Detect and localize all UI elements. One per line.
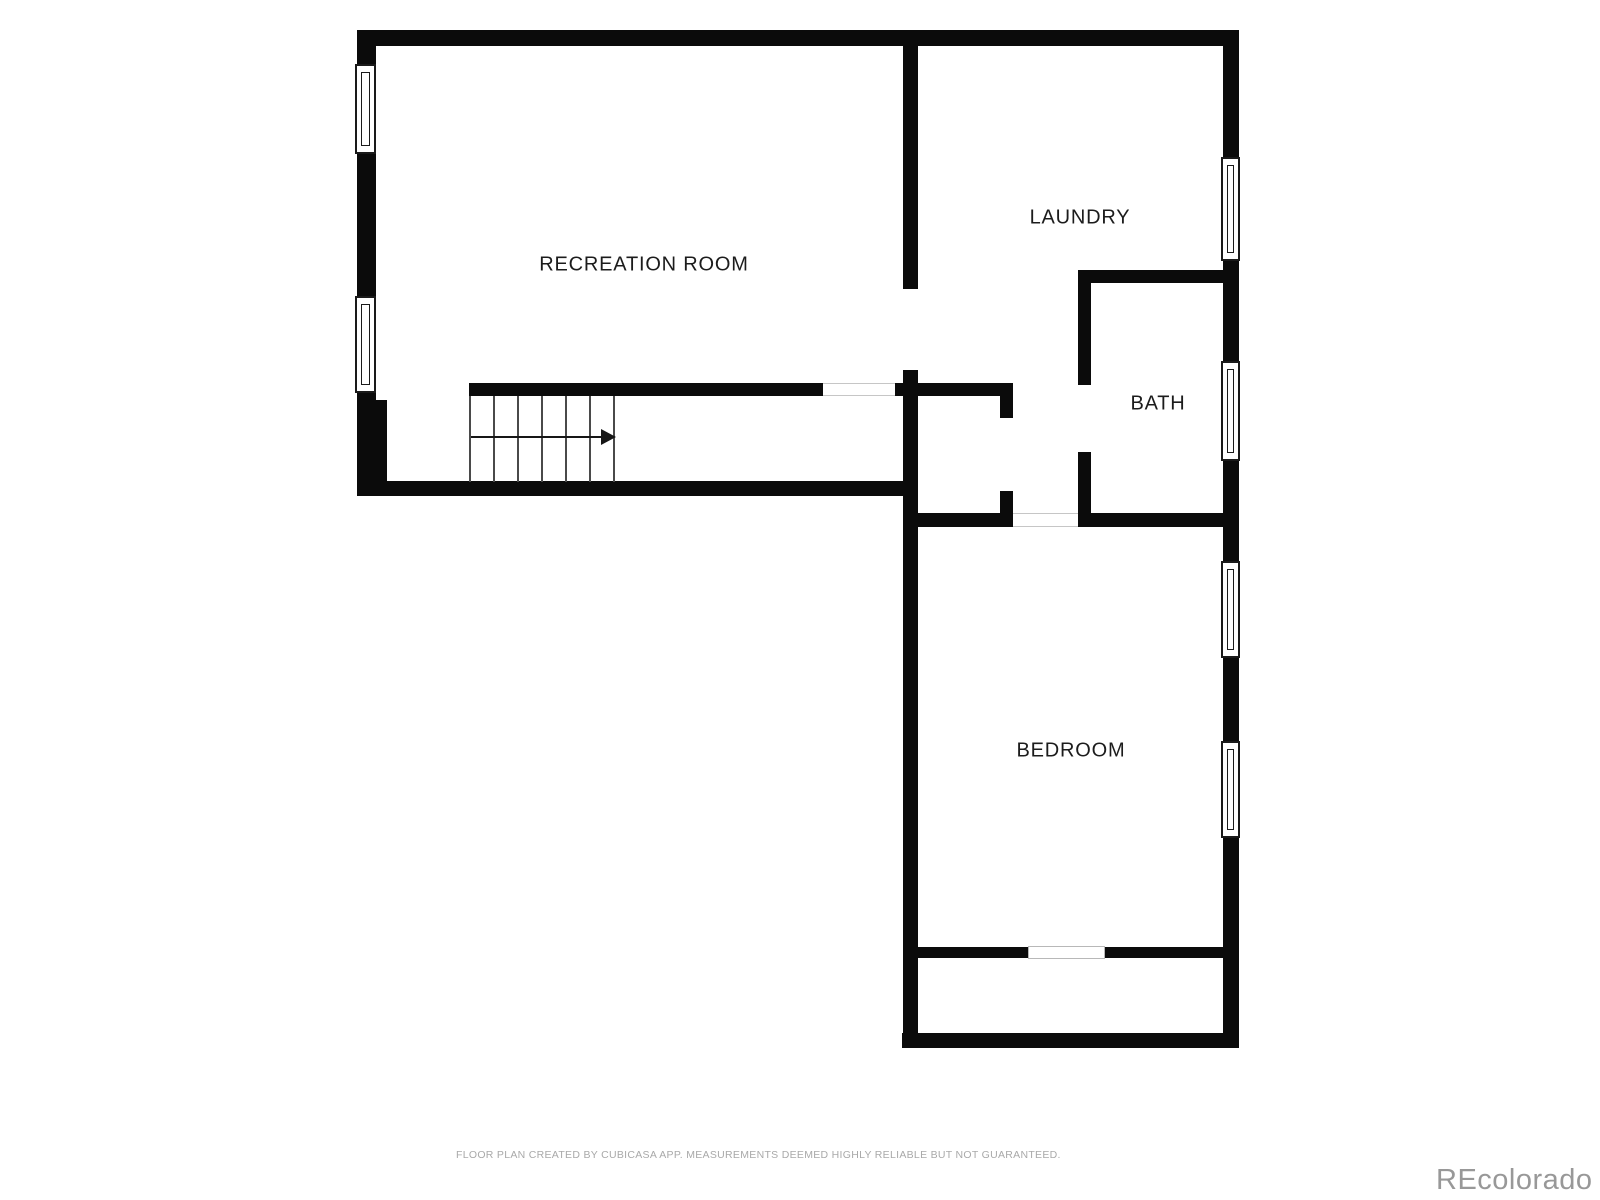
door-opening bbox=[823, 383, 895, 396]
wall bbox=[1078, 270, 1223, 283]
floor-plan-canvas: RECREATION ROOM LAUNDRY BATH BEDROOM FLO… bbox=[0, 0, 1600, 1200]
window-pane bbox=[1227, 165, 1234, 253]
window bbox=[355, 64, 376, 154]
window bbox=[1221, 361, 1240, 461]
room-label-bedroom: BEDROOM bbox=[1017, 740, 1126, 763]
stairs-direction-arrow bbox=[471, 436, 601, 438]
watermark-recolorado: REcolorado bbox=[1436, 1164, 1593, 1197]
room-label-laundry: LAUNDRY bbox=[1030, 207, 1131, 230]
footer-disclaimer: FLOOR PLAN CREATED BY CUBICASA APP. MEAS… bbox=[456, 1149, 1061, 1161]
stair-tread-line bbox=[469, 396, 471, 482]
stair-tread-line bbox=[565, 396, 567, 482]
window bbox=[355, 296, 376, 393]
stair-tread-line bbox=[589, 396, 591, 482]
wall bbox=[1078, 270, 1091, 385]
wall bbox=[357, 30, 1239, 46]
wall bbox=[903, 370, 918, 1048]
stair-tread-line bbox=[493, 396, 495, 482]
stairs bbox=[469, 396, 615, 482]
wall bbox=[902, 1033, 1239, 1048]
wall bbox=[895, 383, 1013, 396]
wall bbox=[357, 481, 918, 496]
wall bbox=[1105, 947, 1225, 958]
stair-tread-line bbox=[517, 396, 519, 482]
window-pane bbox=[1227, 569, 1234, 650]
wall bbox=[1000, 383, 1013, 418]
wall bbox=[1078, 452, 1091, 518]
wall bbox=[469, 383, 823, 396]
wall bbox=[1078, 513, 1225, 527]
floor-plan bbox=[0, 0, 1600, 1200]
stair-tread-line bbox=[541, 396, 543, 482]
window bbox=[1221, 741, 1240, 838]
window bbox=[1221, 157, 1240, 261]
window-pane bbox=[1227, 749, 1234, 830]
window-pane bbox=[1227, 369, 1234, 453]
closet-door-opening bbox=[1028, 946, 1105, 959]
wall bbox=[903, 513, 1013, 527]
window-pane bbox=[361, 304, 370, 385]
stairs-arrow-head bbox=[601, 429, 616, 445]
wall bbox=[903, 30, 918, 289]
window-pane bbox=[361, 72, 370, 146]
door-opening bbox=[1013, 513, 1078, 527]
window bbox=[1221, 561, 1240, 658]
room-label-bath: BATH bbox=[1130, 393, 1185, 416]
wall bbox=[917, 947, 1028, 958]
room-label-recreation-room: RECREATION ROOM bbox=[539, 254, 748, 277]
